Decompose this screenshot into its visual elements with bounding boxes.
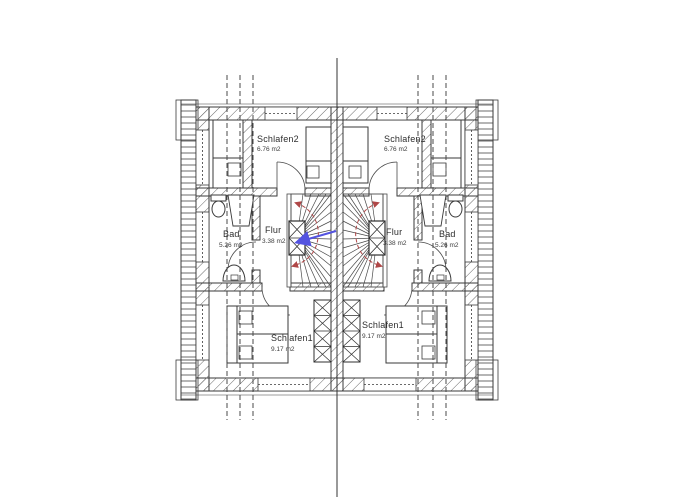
bed-icon [431, 120, 461, 188]
toilet-icon [211, 195, 226, 217]
washbasin-icon [429, 265, 451, 281]
bed-icon [343, 127, 368, 183]
window [377, 107, 407, 120]
double-bed-icon [386, 306, 447, 363]
room-area-flur-left: 3.38 m2 [262, 239, 286, 246]
room-area-schlafen2-left: 6.76 m2 [257, 147, 281, 154]
chimney-shaft-icon [369, 221, 385, 255]
window [465, 130, 478, 185]
wardrobe-icon [343, 300, 360, 362]
room-area-flur-right: 3.38 m2 [383, 241, 407, 248]
room-label-schlafen1-right: Schlafen1 [362, 321, 404, 330]
room-label-bad-left: Bad [223, 230, 240, 239]
window [364, 378, 416, 391]
door-arc [369, 162, 397, 190]
room-label-bad-right: Bad [439, 230, 456, 239]
eave-hatch-left [176, 100, 198, 400]
room-area-schlafen2-right: 6.76 m2 [384, 147, 408, 154]
room-area-bad-right: 5.26 m2 [435, 243, 459, 250]
room-area-bad-left: 5.26 m2 [219, 243, 243, 250]
eave-hatch-right [476, 100, 498, 400]
window [265, 107, 297, 120]
window [258, 378, 310, 391]
door-arc [277, 162, 305, 190]
washbasin-icon [223, 265, 245, 281]
room-label-schlafen2-left: Schlafen2 [257, 135, 299, 144]
room-label-flur-left: Flur [265, 226, 281, 235]
room-label-schlafen2-right: Schlafen2 [384, 135, 426, 144]
shower-icon [228, 195, 254, 226]
bed-icon [306, 127, 331, 183]
room-area-schlafen1-left: 9.17 m2 [271, 347, 295, 354]
toilet-icon [448, 195, 463, 217]
window [465, 305, 478, 360]
room-label-schlafen1-left: Schlafen1 [271, 334, 313, 343]
room-label-flur-right: Flur [386, 228, 402, 237]
chimney-shaft-icon [289, 221, 305, 255]
wardrobe-icon [314, 300, 331, 362]
floor-plan-canvas: Schlafen2 6.76 m2 Schlafen2 6.76 m2 Bad … [0, 0, 700, 500]
window [196, 212, 209, 262]
bed-icon [213, 120, 243, 188]
window [196, 130, 209, 185]
floor-plan-drawing [0, 0, 700, 500]
window [465, 212, 478, 262]
window [196, 305, 209, 360]
room-area-schlafen1-right: 9.17 m2 [362, 334, 386, 341]
